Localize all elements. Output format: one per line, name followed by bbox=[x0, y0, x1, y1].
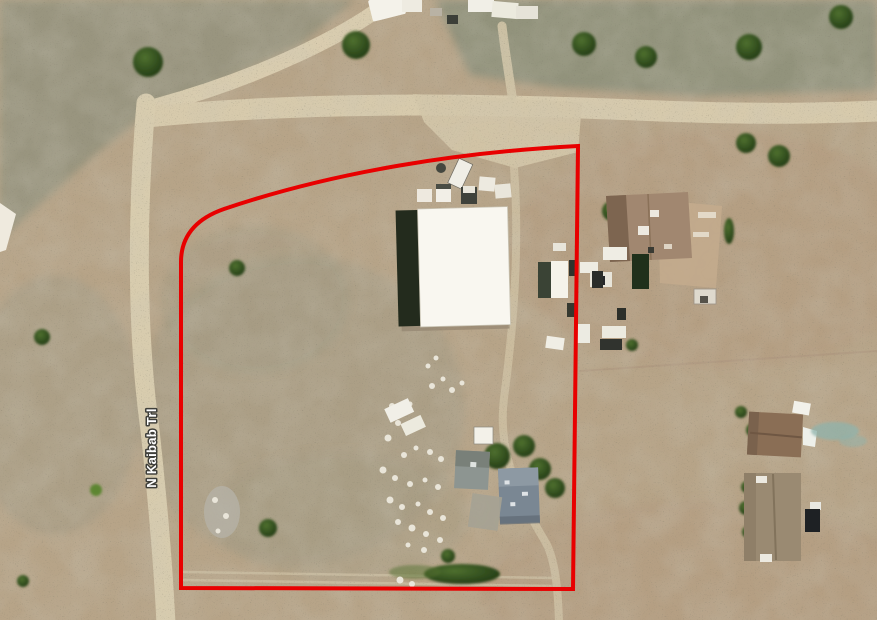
roof-vent bbox=[638, 226, 649, 235]
white-car bbox=[577, 324, 590, 343]
gray-outbuilding bbox=[468, 493, 502, 531]
debris bbox=[392, 475, 398, 481]
satellite-map-view[interactable]: N Kaibab Trl bbox=[0, 0, 877, 620]
tree-cluster bbox=[545, 478, 565, 498]
white-van bbox=[602, 326, 626, 338]
gray-cabin bbox=[454, 450, 490, 490]
tree bbox=[736, 133, 756, 153]
tree bbox=[229, 260, 245, 276]
aerial-imagery: N Kaibab Trl bbox=[0, 0, 877, 620]
debris bbox=[397, 577, 404, 584]
rubble-mound bbox=[204, 486, 240, 538]
debris bbox=[438, 456, 444, 462]
dark-object bbox=[567, 303, 575, 317]
patio-object bbox=[693, 232, 709, 237]
debris bbox=[441, 377, 446, 382]
dark-vehicle bbox=[447, 15, 458, 24]
van bbox=[478, 176, 495, 191]
tree bbox=[34, 329, 50, 345]
debris bbox=[395, 519, 401, 525]
debris bbox=[460, 381, 465, 386]
roof-glint bbox=[510, 502, 515, 506]
house-roof-lower bbox=[500, 515, 540, 524]
patio-object bbox=[664, 244, 672, 249]
van bbox=[494, 183, 511, 198]
tree bbox=[259, 519, 277, 537]
dark-car bbox=[600, 339, 622, 350]
dark-object bbox=[436, 163, 446, 173]
house-roof-upper bbox=[498, 467, 539, 486]
debris bbox=[426, 364, 431, 369]
debris bbox=[409, 525, 416, 532]
roof-vent bbox=[470, 462, 476, 467]
debris bbox=[409, 581, 415, 587]
tree bbox=[635, 46, 657, 68]
tall-tree bbox=[724, 218, 734, 244]
debris bbox=[401, 452, 407, 458]
vehicle bbox=[430, 8, 442, 16]
vehicle-roof bbox=[463, 186, 475, 193]
brown-house bbox=[747, 412, 803, 458]
tan-house bbox=[744, 473, 801, 562]
blue-roof-house bbox=[498, 467, 540, 524]
road-label-n-kaibab-trl: N Kaibab Trl bbox=[144, 408, 159, 487]
white-object bbox=[553, 243, 566, 251]
roof-dark-spot bbox=[648, 247, 654, 253]
debris bbox=[423, 478, 428, 483]
rv-trailer bbox=[491, 1, 518, 19]
warehouse-building bbox=[396, 207, 511, 332]
vehicle bbox=[402, 0, 422, 12]
debris bbox=[449, 387, 455, 393]
debris bbox=[223, 513, 229, 519]
roof-glint bbox=[522, 492, 528, 496]
tree bbox=[441, 549, 455, 563]
white-shed bbox=[474, 427, 493, 444]
small-shed bbox=[538, 261, 568, 298]
tree-cluster bbox=[513, 435, 535, 457]
bush bbox=[735, 406, 747, 418]
debris bbox=[440, 515, 446, 521]
tree bbox=[736, 34, 762, 60]
shed-door bbox=[700, 296, 708, 303]
roof-glint bbox=[504, 480, 509, 484]
debris bbox=[437, 537, 443, 543]
debris bbox=[423, 531, 429, 537]
debris bbox=[395, 420, 401, 426]
debris bbox=[427, 509, 433, 515]
debris bbox=[429, 383, 435, 389]
dark-green-structure bbox=[632, 254, 649, 289]
tree bbox=[768, 145, 790, 167]
debris bbox=[380, 467, 387, 474]
roof-vent bbox=[760, 554, 772, 562]
teal-ground-stain bbox=[839, 435, 867, 447]
bush bbox=[626, 339, 638, 351]
dark-car bbox=[592, 271, 603, 288]
shed-dark-slope bbox=[538, 262, 551, 298]
debris bbox=[385, 435, 392, 442]
debris bbox=[421, 547, 427, 553]
bright-bush bbox=[90, 484, 102, 496]
debris bbox=[407, 481, 413, 487]
debris bbox=[216, 529, 221, 534]
tree bbox=[829, 5, 853, 29]
debris bbox=[435, 484, 441, 490]
debris bbox=[387, 497, 394, 504]
debris bbox=[212, 497, 218, 503]
vehicle bbox=[516, 6, 538, 19]
roof-shaded-edge bbox=[744, 473, 756, 561]
car bbox=[417, 189, 432, 202]
debris bbox=[434, 356, 439, 361]
white-truck bbox=[545, 336, 564, 350]
warehouse-white-roof bbox=[418, 207, 511, 327]
dark-suv bbox=[805, 509, 820, 532]
grass-patch bbox=[389, 565, 441, 579]
shed-white-roof bbox=[551, 261, 568, 298]
debris bbox=[416, 502, 421, 507]
tree bbox=[342, 31, 370, 59]
trailer-cab bbox=[436, 184, 451, 189]
debris bbox=[406, 543, 411, 548]
white-trailer bbox=[603, 247, 627, 260]
tree bbox=[17, 575, 29, 587]
debris bbox=[399, 504, 405, 510]
dark-object bbox=[617, 308, 626, 320]
rv-trailer bbox=[468, 0, 494, 12]
debris bbox=[427, 449, 433, 455]
debris bbox=[414, 446, 419, 451]
tree bbox=[133, 47, 163, 77]
tree bbox=[572, 32, 596, 56]
patio-object bbox=[698, 212, 716, 218]
white-object bbox=[810, 502, 821, 510]
roof-vent bbox=[650, 210, 659, 217]
roof-vent bbox=[756, 476, 767, 483]
warehouse-dark-roof-slope bbox=[396, 210, 421, 327]
